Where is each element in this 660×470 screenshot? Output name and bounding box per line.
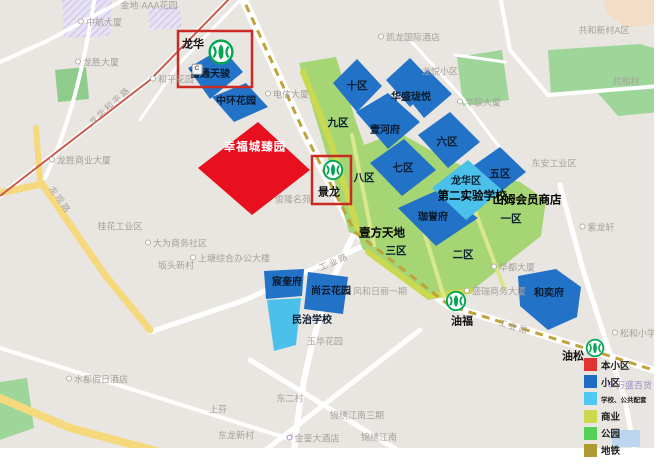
poi-pin-icon (78, 19, 84, 25)
poi-label-heping_garden: 和平花园 (150, 76, 194, 85)
legend-label: 学校、公共配套 (601, 394, 647, 404)
poi-label-dongercun: 东二村 (276, 395, 303, 404)
poi-label-text: 桂花工业区 (97, 222, 142, 232)
poi-pin-icon (145, 240, 151, 246)
poi-label-text: 上芬 (209, 405, 227, 415)
poi-label-longsheng_bldg: 龙胜大厦 (75, 59, 119, 68)
community-label-jiayufu[interactable]: 珈誉府 (418, 213, 448, 223)
zone-label-zone7[interactable]: 七区 (393, 163, 414, 174)
poi-pin-icon (579, 224, 585, 230)
zone-label-zone3[interactable]: 三区 (386, 246, 407, 257)
poi-label-text: 锦绣江南三期 (330, 411, 384, 421)
zone-label-zone8[interactable]: 八区 (354, 173, 375, 184)
legend-item-park: 公园 (584, 427, 647, 440)
community-label-zhonghuan[interactable]: 中环花园 (216, 97, 256, 107)
poi-label-hualian: 华联大厦 (457, 99, 501, 108)
legend-label: 本小区 (601, 358, 630, 372)
poi-label-fenghe: 风和日丽一期 (353, 288, 407, 297)
poi-pin-icon (265, 91, 271, 97)
community-label-heyifu[interactable]: 和奕府 (534, 289, 564, 299)
landmark-label-school2_district[interactable]: 龙华区 (451, 177, 481, 187)
station-exit-badge: C (192, 64, 203, 75)
poi-label-text: 坂头新村 (158, 261, 194, 271)
poi-label-bantou: 坂头新村 (158, 262, 194, 271)
legend-swatch (584, 410, 597, 423)
community-label-yihefu[interactable]: 壹河府 (370, 126, 400, 136)
poi-label-gonghe_a: 共和新村A区 (578, 27, 629, 36)
poi-label-text: 华都大厦 (499, 263, 535, 273)
poi-label-shuidu: 水都假日酒店 (66, 376, 128, 385)
zone-label-zone5[interactable]: 五区 (490, 169, 511, 180)
poi-pin-icon (378, 34, 384, 40)
poi-pin-icon (66, 376, 72, 382)
poi-label-dianxin: 电信大厦 (265, 91, 309, 100)
zone-label-zone6[interactable]: 六区 (437, 137, 458, 148)
poi-label-text: 龙胜大厦 (83, 58, 119, 68)
poi-pin-icon (75, 59, 81, 65)
legend-label: 小区 (601, 375, 620, 389)
zone-label-zone9[interactable]: 九区 (328, 118, 349, 129)
landmark-label-sam[interactable]: 山姆会员商店 (493, 195, 562, 207)
poi-label-text: 风和日丽一期 (353, 287, 407, 297)
community-label-shangyun[interactable]: 尚云花园 (311, 287, 351, 297)
poi-label-text: 凯龙国际酒店 (386, 33, 440, 43)
poi-pin-icon (457, 99, 463, 105)
zone-label-zone2[interactable]: 二区 (453, 250, 474, 261)
poi-label-gonghecun: 共和村 (612, 78, 639, 87)
legend-label: 商业 (601, 409, 620, 423)
park-polygon (55, 67, 89, 102)
landmark-label-minzhi[interactable]: 民治学校 (292, 316, 332, 326)
metro-station-icon-youfu[interactable] (446, 291, 467, 316)
poi-label-text: 松和小学 (620, 329, 656, 339)
landmark-label-yifang[interactable]: 壹方天地 (359, 228, 405, 240)
map-canvas (0, 0, 660, 470)
poi-label-jinxiu3: 锦绣江南三期 (330, 412, 384, 421)
legend-item-metro: 地铁 (584, 444, 647, 457)
right-margin (654, 0, 660, 470)
poi-label-shangtang: 上塘综合办公大楼 (190, 255, 270, 264)
poi-pin-icon (491, 264, 497, 270)
metro-station-label-youfu[interactable]: 油福 (451, 317, 473, 328)
metro-station-label-yousong[interactable]: 油松 (562, 352, 584, 363)
legend-swatch (584, 375, 597, 388)
poi-label-text: 共和村 (612, 77, 639, 87)
poi-label-guihua_ind: 桂花工业区 (97, 223, 142, 232)
poi-label-longsheng_biz: 龙胜商业大厦 (49, 157, 111, 166)
metro-station-icon-jinglong[interactable] (323, 160, 344, 185)
poi-label-text: 华联大厦 (465, 98, 501, 108)
community-label-huasheng[interactable]: 华盛珑悦 (391, 93, 431, 103)
poi-pin-icon (150, 76, 156, 82)
poi-label-text: 和平花园 (158, 75, 194, 85)
poi-label-yuhua: 玉华花园 (307, 338, 343, 347)
legend-swatch (584, 358, 597, 371)
poi-label-text: 龙胜商业大厦 (57, 156, 111, 166)
poi-label-text: 中航大厦 (86, 18, 122, 28)
poi-label-shangfen: 上芬 (209, 406, 227, 415)
community-label-chenkuifu[interactable]: 宸奎府 (272, 278, 302, 288)
zone-label-zone1[interactable]: 一区 (501, 214, 522, 225)
poi-label-dongan: 东安工业区 (531, 160, 576, 169)
poi-label-huadu: 华都大厦 (491, 264, 535, 273)
poi-label-donglong: 东龙新村 (218, 432, 254, 441)
legend-item-school: 学校、公共配套 (584, 392, 647, 405)
poi-label-text: 俊隆名苑 (275, 195, 311, 205)
poi-label-text: 上塘综合办公大楼 (198, 254, 270, 264)
metro-station-label-jinglong[interactable]: 景龙 (318, 188, 340, 199)
poi-label-kailong: 凯龙国际酒店 (378, 34, 440, 43)
poi-label-zhonghang: 中航大厦 (78, 19, 122, 28)
map-legend: 本小区小区学校、公共配套商业公园地铁 (584, 358, 647, 461)
bottom-margin (0, 448, 660, 470)
poi-label-text: 玉华花园 (307, 337, 343, 347)
legend-item-business: 商业 (584, 410, 647, 423)
poi-label-text: 东二村 (276, 394, 303, 404)
metro-station-label-longhua[interactable]: 龙华 (182, 40, 204, 51)
poi-label-text: 紫龙轩 (587, 223, 614, 233)
poi-label-zilong: 紫龙轩 (579, 224, 614, 233)
poi-pin-icon (286, 435, 292, 441)
map-page: 十区九区八区七区六区五区三区二区一区富通天骏中环花园华盛珑悦壹河府珈誉府尚云花园… (0, 0, 660, 470)
poi-label-jinxiu: 锦绣江南 (361, 434, 397, 443)
poi-pin-icon (612, 330, 618, 336)
poi-label-text: 锦绣江南 (361, 433, 397, 443)
poi-label-text: 共和新村A区 (578, 26, 629, 36)
poi-label-text: 金地·AAA花园 (120, 1, 177, 11)
poi-label-junlong: 俊隆名苑 (275, 196, 311, 205)
poi-label-longyue: 龙悦小区 (422, 68, 458, 77)
legend-swatch (584, 444, 597, 457)
legend-label: 公园 (601, 426, 620, 440)
zone-label-zone10[interactable]: 十区 (347, 81, 368, 92)
legend-label: 地铁 (601, 443, 620, 457)
poi-label-shengrui: 盛瑞商务大厦 (464, 288, 526, 297)
legend-swatch (584, 392, 597, 405)
poi-label-text: 龙悦小区 (422, 67, 458, 77)
poi-label-text: 东龙新村 (218, 431, 254, 441)
legend-item-self: 本小区 (584, 358, 647, 371)
highlight-property-label[interactable]: 幸福城臻园 (224, 142, 287, 154)
poi-label-dawei: 大为商务社区 (145, 240, 207, 249)
poi-label-text: 东安工业区 (531, 159, 576, 169)
poi-label-jindiaaa: 金地·AAA花园 (120, 2, 177, 11)
poi-label-text: 盛瑞商务大厦 (472, 287, 526, 297)
poi-label-jinluan: 金銮大酒店 (286, 435, 339, 444)
poi-label-text: 水都假日酒店 (74, 375, 128, 385)
metro-station-icon-longhua[interactable] (208, 39, 234, 69)
poi-label-songhe: 松和小学 (612, 330, 656, 339)
poi-label-text: 金銮大酒店 (294, 434, 339, 444)
poi-label-text: 电信大厦 (273, 90, 309, 100)
poi-pin-icon (49, 157, 55, 163)
poi-label-text: 大为商务社区 (153, 239, 207, 249)
legend-swatch (584, 427, 597, 440)
legend-item-community: 小区 (584, 375, 647, 388)
